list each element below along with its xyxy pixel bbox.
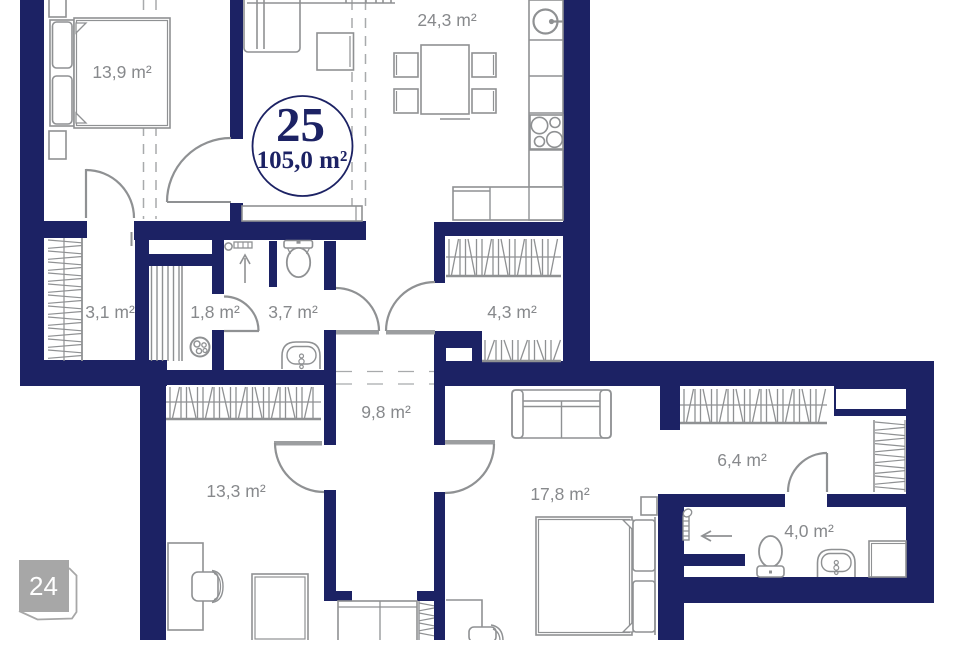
svg-text:13,9 m²: 13,9 m² xyxy=(92,62,151,82)
svg-text:105,0 m²: 105,0 m² xyxy=(257,147,348,174)
svg-text:9,8 m²: 9,8 m² xyxy=(361,402,411,422)
svg-text:24: 24 xyxy=(29,571,58,601)
svg-text:1,8 m²: 1,8 m² xyxy=(190,302,240,322)
svg-text:3,7 m²: 3,7 m² xyxy=(268,302,318,322)
svg-text:4,3 m²: 4,3 m² xyxy=(487,302,537,322)
svg-text:24,3 m²: 24,3 m² xyxy=(417,10,476,30)
svg-text:6,4 m²: 6,4 m² xyxy=(717,450,767,470)
svg-text:3,1 m²: 3,1 m² xyxy=(85,302,135,322)
svg-text:25: 25 xyxy=(276,97,325,152)
svg-text:13,3 m²: 13,3 m² xyxy=(206,481,265,501)
svg-text:17,8 m²: 17,8 m² xyxy=(530,484,589,504)
svg-text:4,0 m²: 4,0 m² xyxy=(784,521,834,541)
